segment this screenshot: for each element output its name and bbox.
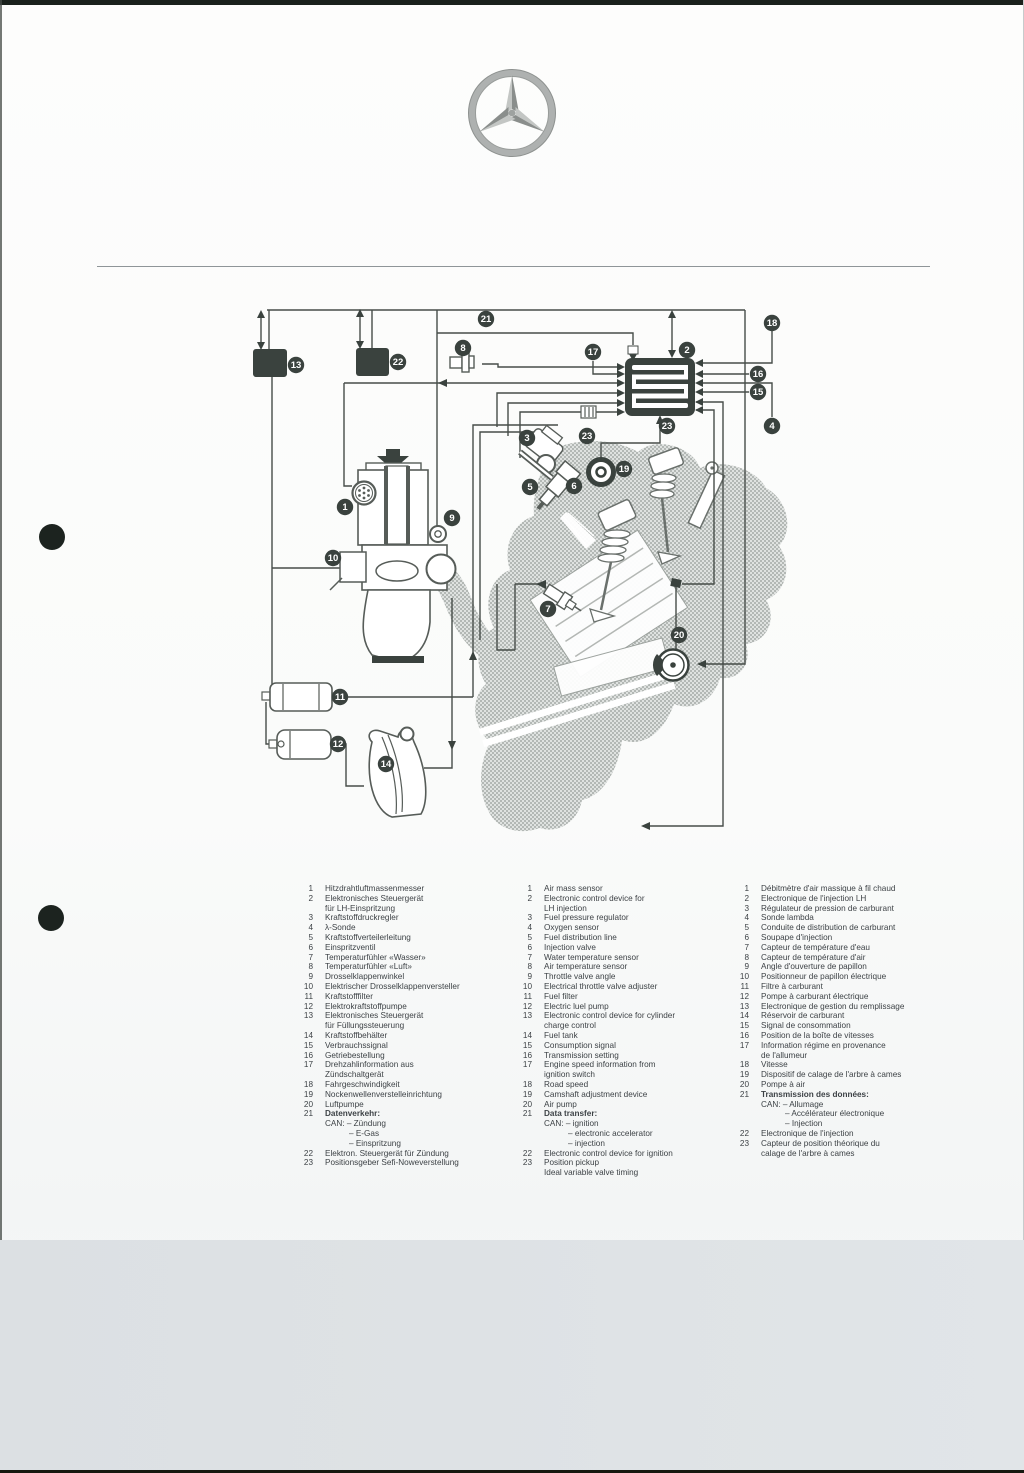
svg-text:22: 22 xyxy=(393,357,404,368)
legend-line: Angle d'ouverture de papillon xyxy=(761,962,867,972)
legend-item-11: 11Fuel filter xyxy=(516,992,744,1002)
legend-item-8: 8Air temperature sensor xyxy=(516,962,744,972)
legend-item-1: 1Débitmètre d'air massique à fil chaud xyxy=(733,884,961,894)
legend-item-text: Air mass sensor xyxy=(544,884,603,894)
legend-item-text: Elektronisches Steuergerätfür Füllungsst… xyxy=(325,1011,423,1031)
legend-item-text: Pompe à air xyxy=(761,1080,805,1090)
legend-item-number: 20 xyxy=(516,1100,532,1110)
legend-item-number: 17 xyxy=(733,1041,749,1051)
legend-item-number: 22 xyxy=(516,1149,532,1159)
legend-item-number: 15 xyxy=(516,1041,532,1051)
legend-item-text: Angle d'ouverture de papillon xyxy=(761,962,867,972)
legend-line: Air mass sensor xyxy=(544,884,603,894)
legend-item-number: 8 xyxy=(733,953,749,963)
legend-line: Capteur de température d'eau xyxy=(761,943,870,953)
legend-item-text: Injection valve xyxy=(544,943,596,953)
svg-text:11: 11 xyxy=(335,692,346,703)
legend-line: Throttle valve angle xyxy=(544,972,615,982)
legend-item-number: 18 xyxy=(297,1080,313,1090)
legend-line: λ-Sonde xyxy=(325,923,356,933)
legend-item-number: 6 xyxy=(297,943,313,953)
svg-text:18: 18 xyxy=(767,318,778,329)
legend-item-8: 8Temperaturfühler «Luft» xyxy=(297,962,525,972)
legend-item-number: 6 xyxy=(733,933,749,943)
legend-item-number: 11 xyxy=(297,992,313,1002)
legend-item-23: 23Capteur de position théorique ducalage… xyxy=(733,1139,961,1159)
legend-item-17: 17Drehzahlinformation ausZündschaltgerät xyxy=(297,1060,525,1080)
legend-line: Elektronisches Steuergerät xyxy=(325,1011,423,1021)
legend-line: Datenverkehr: xyxy=(325,1109,401,1119)
svg-text:3: 3 xyxy=(524,433,529,444)
legend-item-number: 5 xyxy=(516,933,532,943)
badge-23b: 23 xyxy=(659,418,675,434)
svg-text:20: 20 xyxy=(674,630,685,641)
legend-item-text: Electronique de l'injection LH xyxy=(761,894,866,904)
legend-item-4: 4λ-Sonde xyxy=(297,923,525,933)
legend-item-number: 15 xyxy=(297,1041,313,1051)
legend-item-number: 6 xyxy=(516,943,532,953)
legend-line: Pompe à carburant électrique xyxy=(761,992,868,1002)
legend-item-13: 13Electronic control device for cylinder… xyxy=(516,1011,744,1031)
legend-line: Air temperature sensor xyxy=(544,962,627,972)
legend-item-text: Capteur de température d'air xyxy=(761,953,865,963)
legend-item-number: 17 xyxy=(297,1060,313,1070)
legend-item-number: 23 xyxy=(516,1158,532,1168)
legend-line: Information régime en provenance xyxy=(761,1041,886,1051)
legend-item-number: 22 xyxy=(297,1149,313,1159)
legend-item-number: 9 xyxy=(297,972,313,982)
legend-line: – Einspritzung xyxy=(325,1139,401,1149)
svg-text:17: 17 xyxy=(588,347,599,358)
legend-item-text: Transmission setting xyxy=(544,1051,619,1061)
legend-item-number: 7 xyxy=(733,943,749,953)
legend-item-text: Electronic control device forLH injectio… xyxy=(544,894,645,914)
throttle-bore xyxy=(427,555,456,584)
legend-item-number: 13 xyxy=(733,1002,749,1012)
legend-item-18: 18Road speed xyxy=(516,1080,744,1090)
legend-item-number: 1 xyxy=(516,884,532,894)
legend-item-7: 7Temperaturfühler «Wasser» xyxy=(297,953,525,963)
legend-item-number: 12 xyxy=(516,1002,532,1012)
legend-item-18: 18Vitesse xyxy=(733,1060,961,1070)
legend-item-text: Position pickupIdeal variable valve timi… xyxy=(544,1158,638,1178)
legend-item-text: Réservoir de carburant xyxy=(761,1011,844,1021)
control-module-13 xyxy=(253,349,287,377)
legend-line: Position de la boîte de vitesses xyxy=(761,1031,874,1041)
legend-item-10: 10Elektrischer Drosselklappenversteller xyxy=(297,982,525,992)
legend-line: Water temperature sensor xyxy=(544,953,639,963)
legend-item-21: 21Datenverkehr:CAN: – Zündung– E-Gas– Ei… xyxy=(297,1109,525,1148)
badge-4: 4 xyxy=(764,418,780,434)
legend-line: Data transfer: xyxy=(544,1109,653,1119)
intake-elbow xyxy=(363,590,430,662)
engine-block-art xyxy=(420,441,787,831)
control-module-22 xyxy=(356,348,389,376)
svg-text:6: 6 xyxy=(571,481,576,492)
legend-item-text: Kraftstoffverteilerleitung xyxy=(325,933,411,943)
legend-line: Air pump xyxy=(544,1100,577,1110)
legend-item-text: Positionneur de papillon électrique xyxy=(761,972,886,982)
legend-item-number: 15 xyxy=(733,1021,749,1031)
legend-line: charge control xyxy=(544,1021,675,1031)
round-connector-1 xyxy=(353,482,376,505)
legend-line: Position pickup xyxy=(544,1158,638,1168)
legend-item-5: 5Fuel distribution line xyxy=(516,933,744,943)
legend-line: für Füllungssteuerung xyxy=(325,1021,423,1031)
legend-line: Soupape d'injection xyxy=(761,933,832,943)
legend-item-text: Fahrgeschwindigkeit xyxy=(325,1080,400,1090)
legend-item-text: Information régime en provenancede l'all… xyxy=(761,1041,886,1061)
legend-item-19: 19Dispositif de calage de l'arbre à came… xyxy=(733,1070,961,1080)
legend-item-number: 13 xyxy=(516,1011,532,1021)
legend-item-number: 20 xyxy=(297,1100,313,1110)
legend-item-number: 9 xyxy=(516,972,532,982)
legend-item-14: 14Fuel tank xyxy=(516,1031,744,1041)
svg-text:4: 4 xyxy=(769,421,775,432)
legend-line: Réservoir de carburant xyxy=(761,1011,844,1021)
legend-line: Conduite de distribution de carburant xyxy=(761,923,895,933)
legend-line: CAN: – ignition xyxy=(544,1119,653,1129)
legend-item-text: Engine speed information fromignition sw… xyxy=(544,1060,656,1080)
legend-item-number: 1 xyxy=(297,884,313,894)
punch-hole-mark xyxy=(39,524,65,550)
legend-item-number: 5 xyxy=(297,933,313,943)
legend-item-23: 23Position pickupIdeal variable valve ti… xyxy=(516,1158,744,1178)
legend-item-number: 16 xyxy=(733,1031,749,1041)
svg-text:5: 5 xyxy=(527,482,533,493)
legend-item-text: Air temperature sensor xyxy=(544,962,627,972)
legend-line: calage de l'arbre à cames xyxy=(761,1149,880,1159)
legend-line: für LH-Einspritzung xyxy=(325,904,423,914)
legend-item-text: Kraftstofffilter xyxy=(325,992,373,1002)
legend-line: Signal de consommation xyxy=(761,1021,851,1031)
legend-item-22: 22Elektron. Steuergerät für Zündung xyxy=(297,1149,525,1159)
legend-item-22: 22Electronic control device for ignition xyxy=(516,1149,744,1159)
legend-item-number: 21 xyxy=(516,1109,532,1119)
svg-text:10: 10 xyxy=(328,553,339,564)
legend-item-2: 2Elektronisches Steuergerätfür LH-Einspr… xyxy=(297,894,525,914)
legend-item-3: 3Régulateur de pression de carburant xyxy=(733,904,961,914)
legend-item-20: 20Air pump xyxy=(516,1100,744,1110)
legend-item-number: 8 xyxy=(297,962,313,972)
legend-line: Elektron. Steuergerät für Zündung xyxy=(325,1149,449,1159)
camshaft-adjuster-ring xyxy=(589,460,614,485)
legend-item-23: 23Positionsgeber Sefi-Noweverstellung xyxy=(297,1158,525,1168)
legend-item-number: 2 xyxy=(297,894,313,904)
legend-item-text: Electronique de l'injection xyxy=(761,1129,854,1139)
legend-line: Débitmètre d'air massique à fil chaud xyxy=(761,884,895,894)
legend-line: Electronic control device for cylinder xyxy=(544,1011,675,1021)
legend-item-text: Conduite de distribution de carburant xyxy=(761,923,895,933)
punch-hole-mark xyxy=(38,905,64,931)
mercedes-logo xyxy=(468,69,556,157)
badge-3: 3 xyxy=(519,430,535,446)
badge-1: 1 xyxy=(337,499,353,515)
legend-item-6: 6Einspritzventil xyxy=(297,943,525,953)
legend-item-text: Dispositif de calage de l'arbre à cames xyxy=(761,1070,901,1080)
legend-item-16: 16Getriebestellung xyxy=(297,1051,525,1061)
legend-item-number: 19 xyxy=(297,1090,313,1100)
legend-line: – Injection xyxy=(761,1119,884,1129)
badge-7: 7 xyxy=(540,601,556,617)
svg-text:21: 21 xyxy=(481,314,492,325)
assembly-base xyxy=(372,656,424,663)
legend-line: Dispositif de calage de l'arbre à cames xyxy=(761,1070,901,1080)
legend-item-number: 19 xyxy=(733,1070,749,1080)
legend-item-text: Electric luel pump xyxy=(544,1002,609,1012)
legend-line: – E-Gas xyxy=(325,1129,401,1139)
badge-23a: 23 xyxy=(579,428,595,444)
legend-item-text: Hitzdrahtluftmassenmesser xyxy=(325,884,424,894)
legend-item-number: 16 xyxy=(297,1051,313,1061)
legend-item-text: Temperaturfühler «Luft» xyxy=(325,962,412,972)
legend-item-number: 11 xyxy=(516,992,532,1002)
svg-text:14: 14 xyxy=(381,759,392,770)
legend-item-text: Pompe à carburant électrique xyxy=(761,992,868,1002)
badge-13: 13 xyxy=(288,357,304,373)
legend-item-9: 9Throttle valve angle xyxy=(516,972,744,982)
legend-item-12: 12Elektrokraftstoffpumpe xyxy=(297,1002,525,1012)
legend-item-number: 18 xyxy=(516,1080,532,1090)
legend-item-6: 6Injection valve xyxy=(516,943,744,953)
legend-item-number: 2 xyxy=(733,894,749,904)
legend-item-number: 4 xyxy=(516,923,532,933)
legend-item-text: Régulateur de pression de carburant xyxy=(761,904,894,914)
badge-20: 20 xyxy=(671,627,687,643)
legend-line: Injection valve xyxy=(544,943,596,953)
legend-item-number: 9 xyxy=(733,962,749,972)
legend-item-text: Fuel tank xyxy=(544,1031,578,1041)
legend-item-2: 2Electronic control device forLH injecti… xyxy=(516,894,744,914)
legend-item-11: 11Filtre à carburant xyxy=(733,982,961,992)
legend-item-text: Temperaturfühler «Wasser» xyxy=(325,953,426,963)
svg-text:9: 9 xyxy=(449,513,454,524)
svg-text:13: 13 xyxy=(291,360,302,371)
legend-item-19: 19Camshaft adjustment device xyxy=(516,1090,744,1100)
legend-item-3: 3Fuel pressure regulator xyxy=(516,913,744,923)
legend-item-text: Soupape d'injection xyxy=(761,933,832,943)
legend-line: Fuel pressure regulator xyxy=(544,913,629,923)
svg-text:23: 23 xyxy=(582,431,593,442)
legend-line: Zündschaltgerät xyxy=(325,1070,414,1080)
legend-item-text: Nockenwellenverstelleinrichtung xyxy=(325,1090,442,1100)
legend-item-number: 14 xyxy=(733,1011,749,1021)
legend-item-number: 18 xyxy=(733,1060,749,1070)
legend-item-15: 15Signal de consommation xyxy=(733,1021,961,1031)
legend-item-number: 3 xyxy=(297,913,313,923)
legend-item-number: 14 xyxy=(516,1031,532,1041)
fuel-pump xyxy=(269,730,339,759)
legend-column-french: 1Débitmètre d'air massique à fil chaud2E… xyxy=(733,884,961,1158)
legend-item-number: 12 xyxy=(733,992,749,1002)
legend-item-21: 21Transmission des données:CAN: – Alluma… xyxy=(733,1090,961,1129)
legend-item-text: Electronique de gestion du remplissage xyxy=(761,1002,904,1012)
legend-item-number: 1 xyxy=(733,884,749,894)
legend-item-text: Filtre à carburant xyxy=(761,982,823,992)
legend-item-7: 7Capteur de température d'eau xyxy=(733,943,961,953)
legend-line: Drosselklappenwinkel xyxy=(325,972,404,982)
legend-item-text: Elektronisches Steuergerätfür LH-Einspri… xyxy=(325,894,423,914)
legend-line: Electronique de l'injection xyxy=(761,1129,854,1139)
legend-item-text: Electronic control device for ignition xyxy=(544,1149,673,1159)
scanned-brochure-page: 123456789101112131415161718192021222323 … xyxy=(0,0,1024,1473)
legend-item-18: 18Fahrgeschwindigkeit xyxy=(297,1080,525,1090)
legend-item-number: 14 xyxy=(297,1031,313,1041)
legend-item-number: 5 xyxy=(733,923,749,933)
legend-item-text: Vitesse xyxy=(761,1060,788,1070)
legend-line: ignition switch xyxy=(544,1070,656,1080)
svg-text:23: 23 xyxy=(662,421,673,432)
legend-item-text: Fuel filter xyxy=(544,992,578,1002)
legend-item-15: 15Consumption signal xyxy=(516,1041,744,1051)
legend-item-11: 11Kraftstofffilter xyxy=(297,992,525,1002)
legend-item-number: 3 xyxy=(516,913,532,923)
legend-item-number: 20 xyxy=(733,1080,749,1090)
legend-column-english: 1Air mass sensor2Electronic control devi… xyxy=(516,884,744,1178)
legend-item-8: 8Capteur de température d'air xyxy=(733,953,961,963)
legend-line: Elektronisches Steuergerät xyxy=(325,894,423,904)
legend-line: Fahrgeschwindigkeit xyxy=(325,1080,400,1090)
legend-line: Positionneur de papillon électrique xyxy=(761,972,886,982)
legend-line: Nockenwellenverstelleinrichtung xyxy=(325,1090,442,1100)
legend-line: CAN: – Zündung xyxy=(325,1119,401,1129)
legend-line: Camshaft adjustment device xyxy=(544,1090,647,1100)
legend-item-text: Elektrischer Drosselklappenversteller xyxy=(325,982,460,992)
legend-item-text: Road speed xyxy=(544,1080,588,1090)
legend-item-text: Electronic control device for cylinderch… xyxy=(544,1011,675,1031)
horizontal-rule xyxy=(97,266,930,267)
legend-line: Kraftstoffverteilerleitung xyxy=(325,933,411,943)
legend-item-text: Signal de consommation xyxy=(761,1021,851,1031)
legend-item-3: 3Kraftstoffdruckregler xyxy=(297,913,525,923)
legend-line: Electric luel pump xyxy=(544,1002,609,1012)
legend-item-text: Kraftstoffdruckregler xyxy=(325,913,399,923)
legend-line: Pompe à air xyxy=(761,1080,805,1090)
legend-line: Electronique de l'injection LH xyxy=(761,894,866,904)
legend-item-text: Luftpumpe xyxy=(325,1100,364,1110)
legend-line: de l'allumeur xyxy=(761,1051,886,1061)
legend-item-22: 22Electronique de l'injection xyxy=(733,1129,961,1139)
legend-column-german: 1Hitzdrahtluftmassenmesser2Elektronische… xyxy=(297,884,525,1168)
legend-item-text: Oxygen sensor xyxy=(544,923,599,933)
legend-item-number: 11 xyxy=(733,982,749,992)
legend-line: Drehzahlinformation aus xyxy=(325,1060,414,1070)
legend-item-number: 21 xyxy=(733,1090,749,1100)
svg-text:1: 1 xyxy=(342,502,348,513)
legend-line: Vitesse xyxy=(761,1060,788,1070)
legend-line: CAN: – Allumage xyxy=(761,1100,884,1110)
legend-item-14: 14Réservoir de carburant xyxy=(733,1011,961,1021)
legend-item-number: 10 xyxy=(516,982,532,992)
svg-text:8: 8 xyxy=(460,343,465,354)
svg-text:12: 12 xyxy=(333,739,344,750)
legend-item-text: Drosselklappenwinkel xyxy=(325,972,404,982)
legend-item-number: 23 xyxy=(733,1139,749,1149)
legend-item-number: 21 xyxy=(297,1109,313,1119)
legend-line: Elektrokraftstoffpumpe xyxy=(325,1002,407,1012)
legend-line: Temperaturfühler «Luft» xyxy=(325,962,412,972)
legend-item-text: Fuel pressure regulator xyxy=(544,913,629,923)
svg-text:16: 16 xyxy=(753,369,764,380)
footer-band: Mercedes-Benz400 E Funktionsschemades LH… xyxy=(0,1240,1024,1473)
inline-connector xyxy=(581,406,596,418)
legend-item-16: 16Position de la boîte de vitesses xyxy=(733,1031,961,1041)
legend-item-text: Elektron. Steuergerät für Zündung xyxy=(325,1149,449,1159)
legend-item-number: 10 xyxy=(733,972,749,982)
badge-15: 15 xyxy=(750,384,766,400)
legend-item-number: 7 xyxy=(297,953,313,963)
legend-line: Capteur de température d'air xyxy=(761,953,865,963)
legend-item-text: Fuel distribution line xyxy=(544,933,617,943)
lh-injection-functional-diagram: 123456789101112131415161718192021222323 xyxy=(240,295,815,850)
legend-item-text: Positionsgeber Sefi-Noweverstellung xyxy=(325,1158,459,1168)
legend-item-text: Consumption signal xyxy=(544,1041,616,1051)
legend-item-text: Position de la boîte de vitesses xyxy=(761,1031,874,1041)
legend-line: Einspritzventil xyxy=(325,943,376,953)
svg-text:15: 15 xyxy=(753,387,764,398)
legend-line: Ideal variable valve timing xyxy=(544,1168,638,1178)
legend-item-12: 12Pompe à carburant électrique xyxy=(733,992,961,1002)
legend-item-9: 9Drosselklappenwinkel xyxy=(297,972,525,982)
legend-item-6: 6Soupape d'injection xyxy=(733,933,961,943)
legend-item-number: 23 xyxy=(297,1158,313,1168)
legend-item-text: Drehzahlinformation ausZündschaltgerät xyxy=(325,1060,414,1080)
badge-12: 12 xyxy=(330,736,346,752)
legend-item-text: Capteur de position théorique ducalage d… xyxy=(761,1139,880,1159)
legend-line: Fuel distribution line xyxy=(544,933,617,943)
badge-17: 17 xyxy=(585,344,601,360)
legend-line: Transmission setting xyxy=(544,1051,619,1061)
legend-line: Electronic control device for ignition xyxy=(544,1149,673,1159)
legend-item-20: 20Pompe à air xyxy=(733,1080,961,1090)
legend-item-19: 19Nockenwellenverstelleinrichtung xyxy=(297,1090,525,1100)
legend-item-number: 10 xyxy=(297,982,313,992)
legend-item-1: 1Hitzdrahtluftmassenmesser xyxy=(297,884,525,894)
legend-item-21: 21Data transfer:CAN: – ignition– electro… xyxy=(516,1109,744,1148)
legend-item-number: 16 xyxy=(516,1051,532,1061)
legend-item-number: 12 xyxy=(297,1002,313,1012)
legend-item-text: Transmission des données:CAN: – Allumage… xyxy=(761,1090,884,1129)
legend-line: Kraftstoffdruckregler xyxy=(325,913,399,923)
svg-text:7: 7 xyxy=(545,604,550,615)
legend-item-number: 4 xyxy=(733,913,749,923)
legend-item-20: 20Luftpumpe xyxy=(297,1100,525,1110)
legend-item-number: 8 xyxy=(516,962,532,972)
legend-line: – injection xyxy=(544,1139,653,1149)
legend-item-15: 15Verbrauchssignal xyxy=(297,1041,525,1051)
legend-line: Capteur de position théorique du xyxy=(761,1139,880,1149)
legend-item-16: 16Transmission setting xyxy=(516,1051,744,1061)
legend-line: Engine speed information from xyxy=(544,1060,656,1070)
badge-18: 18 xyxy=(764,315,780,331)
legend-item-text: Air pump xyxy=(544,1100,577,1110)
legend-item-number: 4 xyxy=(297,923,313,933)
badge-11: 11 xyxy=(332,689,348,705)
legend-item-number: 13 xyxy=(297,1011,313,1021)
legend-item-4: 4Sonde lambda xyxy=(733,913,961,923)
fuel-tank xyxy=(369,728,426,818)
legend-item-17: 17Information régime en provenancede l'a… xyxy=(733,1041,961,1061)
legend-line: Luftpumpe xyxy=(325,1100,364,1110)
legend-line: Fuel filter xyxy=(544,992,578,1002)
legend-line: Electronic control device for xyxy=(544,894,645,904)
legend-item-text: Sonde lambda xyxy=(761,913,814,923)
badge-6: 6 xyxy=(566,478,582,494)
legend-line: LH injection xyxy=(544,904,645,914)
legend-item-number: 2 xyxy=(516,894,532,904)
legend-line: Fuel tank xyxy=(544,1031,578,1041)
legend-line: Electronique de gestion du remplissage xyxy=(761,1002,904,1012)
